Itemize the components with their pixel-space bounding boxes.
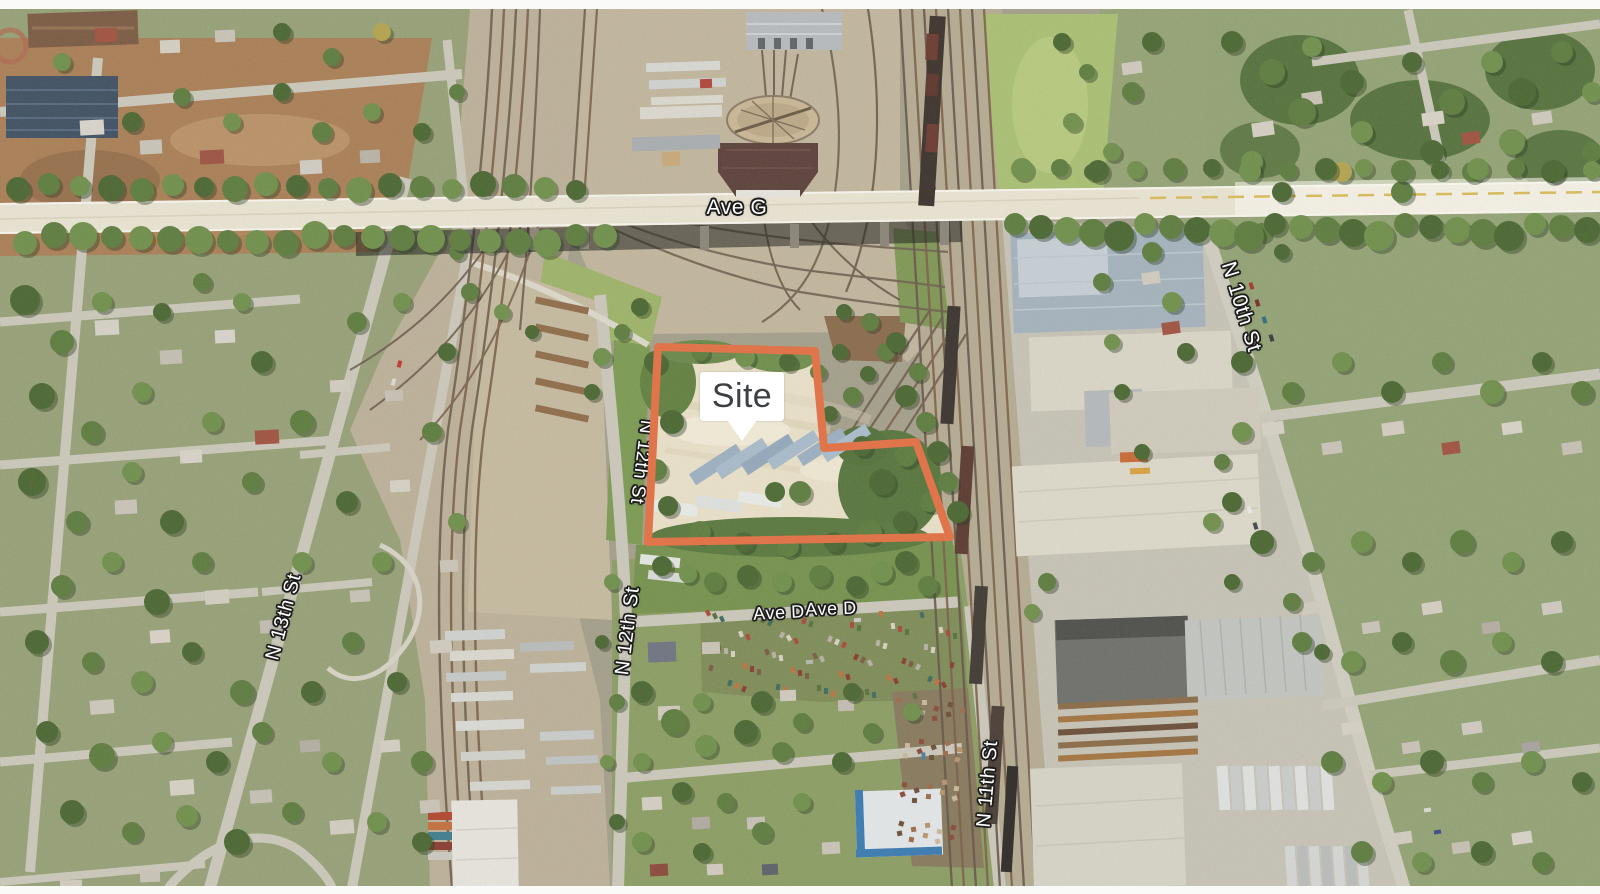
aerial-imagery xyxy=(0,0,1600,894)
top-border xyxy=(0,0,1600,9)
bottom-border xyxy=(0,886,1600,894)
site-callout-tail xyxy=(727,420,757,441)
photo-grain xyxy=(0,0,1600,894)
aerial-map: Ave G N 13th St N 12th St N 12th St Ave … xyxy=(0,0,1600,894)
site-callout-label: Site xyxy=(712,377,772,416)
site-callout: Site xyxy=(700,372,784,421)
